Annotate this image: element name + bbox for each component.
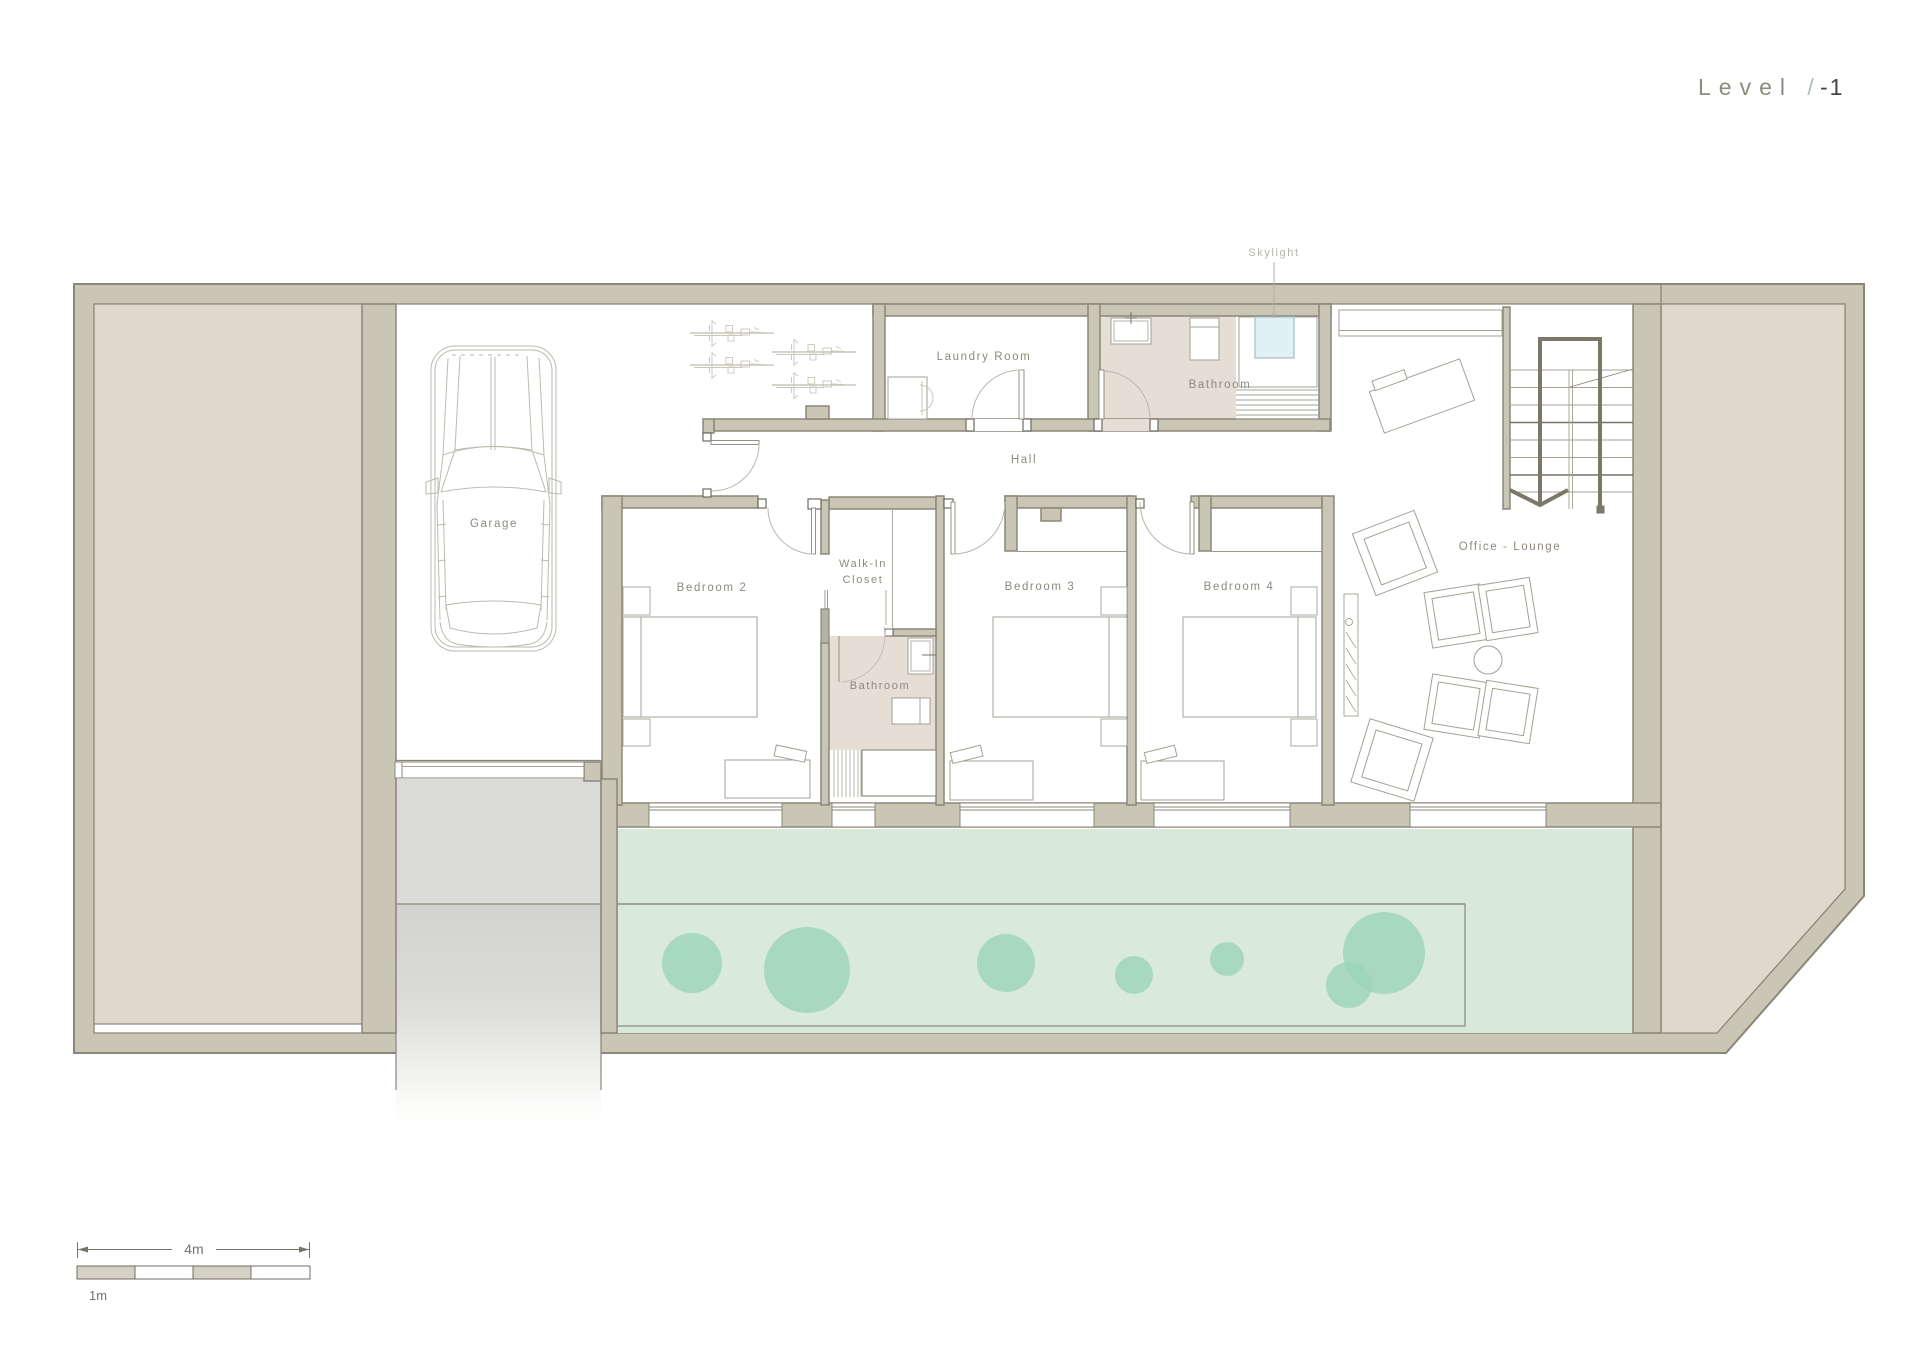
svg-text:1m: 1m	[89, 1288, 107, 1303]
svg-text:Level /: Level /	[1698, 74, 1822, 100]
svg-text:-1: -1	[1820, 74, 1844, 100]
svg-text:Hall: Hall	[1011, 454, 1037, 466]
svg-text:Walk-In: Walk-In	[839, 558, 887, 570]
svg-text:Bathroom: Bathroom	[850, 680, 911, 692]
svg-text:4m: 4m	[184, 1241, 203, 1257]
svg-text:Garage: Garage	[470, 518, 518, 530]
svg-text:Skylight: Skylight	[1248, 247, 1299, 259]
svg-text:Bathroom: Bathroom	[1189, 379, 1252, 391]
svg-text:Office - Lounge: Office - Lounge	[1459, 541, 1561, 553]
svg-text:Bedroom 4: Bedroom 4	[1204, 581, 1275, 593]
svg-text:Bedroom 3: Bedroom 3	[1005, 581, 1076, 593]
svg-text:Closet: Closet	[843, 574, 884, 586]
svg-text:Bedroom 2: Bedroom 2	[677, 582, 748, 594]
svg-text:Laundry Room: Laundry Room	[937, 351, 1032, 363]
